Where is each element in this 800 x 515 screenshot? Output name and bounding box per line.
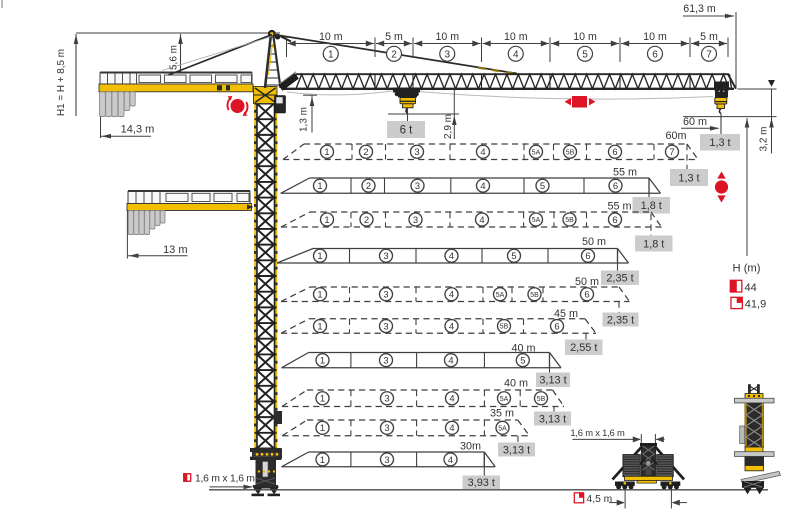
- svg-text:30m: 30m: [460, 440, 481, 452]
- svg-text:6: 6: [585, 250, 590, 261]
- svg-text:1: 1: [320, 422, 325, 433]
- svg-text:7: 7: [706, 49, 712, 60]
- svg-text:4: 4: [449, 422, 454, 433]
- svg-text:3: 3: [384, 454, 389, 465]
- svg-text:1: 1: [317, 180, 322, 191]
- svg-text:3: 3: [415, 180, 420, 191]
- svg-text:10 m: 10 m: [435, 31, 459, 43]
- svg-text:3,2 m: 3,2 m: [759, 126, 770, 151]
- svg-text:1,6 m x 1,6 m: 1,6 m x 1,6 m: [570, 427, 625, 438]
- svg-text:5B: 5B: [500, 324, 509, 331]
- svg-text:1,6 m x 1,6 m: 1,6 m x 1,6 m: [195, 474, 255, 485]
- svg-text:H (m): H (m): [733, 263, 761, 275]
- svg-text:41,9: 41,9: [745, 299, 766, 311]
- svg-text:4: 4: [480, 180, 485, 191]
- svg-text:2,35 t: 2,35 t: [607, 314, 634, 326]
- svg-text:6 t: 6 t: [400, 125, 414, 137]
- svg-text:4: 4: [479, 214, 484, 225]
- svg-text:4: 4: [449, 289, 454, 300]
- svg-text:6: 6: [652, 49, 658, 60]
- svg-text:10 m: 10 m: [643, 31, 667, 43]
- svg-text:60 m: 60 m: [683, 116, 707, 128]
- svg-text:3,13 t: 3,13 t: [539, 375, 566, 387]
- svg-text:3,13 t: 3,13 t: [539, 413, 566, 425]
- svg-text:4: 4: [449, 250, 454, 261]
- svg-text:3: 3: [384, 422, 389, 433]
- svg-text:10 m: 10 m: [504, 31, 528, 43]
- svg-text:5 m: 5 m: [385, 31, 403, 43]
- svg-text:10 m: 10 m: [319, 31, 343, 43]
- svg-text:2: 2: [391, 49, 397, 60]
- svg-text:2,35 t: 2,35 t: [606, 273, 633, 285]
- svg-text:5A: 5A: [498, 425, 507, 432]
- svg-text:44: 44: [745, 282, 757, 294]
- svg-text:5: 5: [520, 355, 525, 366]
- svg-text:3: 3: [444, 49, 450, 60]
- svg-text:5B: 5B: [537, 396, 546, 403]
- svg-text:1,8 t: 1,8 t: [643, 238, 664, 250]
- svg-text:4: 4: [480, 146, 485, 157]
- svg-text:50 m: 50 m: [582, 236, 606, 248]
- svg-text:1,3 t: 1,3 t: [678, 172, 699, 184]
- svg-text:10 m: 10 m: [573, 31, 597, 43]
- svg-text:6: 6: [612, 146, 617, 157]
- svg-text:5: 5: [540, 180, 545, 191]
- svg-text:6: 6: [613, 180, 618, 191]
- svg-text:61,3 m: 61,3 m: [683, 3, 716, 15]
- svg-text:6: 6: [554, 320, 559, 331]
- svg-text:1,8 t: 1,8 t: [641, 200, 662, 212]
- svg-text:55 m: 55 m: [613, 166, 637, 178]
- svg-text:3: 3: [383, 355, 388, 366]
- svg-text:5B: 5B: [566, 149, 575, 156]
- svg-text:60m: 60m: [665, 130, 686, 142]
- svg-text:2: 2: [363, 146, 368, 157]
- svg-text:1: 1: [324, 214, 329, 225]
- svg-text:1,3 t: 1,3 t: [709, 137, 730, 149]
- svg-text:5,6 m: 5,6 m: [169, 45, 180, 70]
- svg-text:5B: 5B: [530, 292, 539, 299]
- svg-text:2: 2: [364, 214, 369, 225]
- svg-text:5: 5: [582, 49, 588, 60]
- svg-text:1: 1: [317, 320, 322, 331]
- svg-text:1: 1: [320, 454, 325, 465]
- svg-text:55 m: 55 m: [607, 201, 631, 213]
- svg-text:50 m: 50 m: [575, 276, 599, 288]
- svg-text:6: 6: [612, 214, 617, 225]
- svg-text:1: 1: [324, 146, 329, 157]
- svg-text:3,13 t: 3,13 t: [503, 444, 530, 456]
- svg-text:1: 1: [317, 289, 322, 300]
- svg-text:35 m: 35 m: [490, 407, 514, 419]
- svg-text:3: 3: [414, 146, 419, 157]
- svg-text:2,55 t: 2,55 t: [570, 342, 597, 354]
- svg-text:H1 = H + 8,5 m: H1 = H + 8,5 m: [56, 49, 67, 116]
- svg-text:13 m: 13 m: [163, 244, 187, 256]
- svg-text:5: 5: [511, 250, 516, 261]
- svg-text:1: 1: [320, 393, 325, 404]
- svg-text:4: 4: [449, 320, 454, 331]
- svg-text:45 m: 45 m: [554, 308, 578, 320]
- svg-text:7: 7: [669, 146, 674, 157]
- svg-text:4: 4: [513, 49, 519, 60]
- svg-text:3,93 t: 3,93 t: [468, 477, 495, 489]
- svg-text:4,5 m: 4,5 m: [587, 494, 613, 505]
- svg-text:3: 3: [383, 320, 388, 331]
- svg-text:3: 3: [383, 250, 388, 261]
- svg-text:5A: 5A: [532, 217, 541, 224]
- svg-text:3: 3: [413, 214, 418, 225]
- svg-text:40 m: 40 m: [511, 342, 535, 354]
- svg-text:1: 1: [317, 250, 322, 261]
- svg-text:3: 3: [384, 393, 389, 404]
- svg-text:5A: 5A: [496, 292, 505, 299]
- svg-text:4: 4: [448, 454, 453, 465]
- svg-text:1,3 m: 1,3 m: [299, 107, 310, 132]
- svg-text:1: 1: [320, 355, 325, 366]
- svg-text:2: 2: [366, 180, 371, 191]
- svg-text:4: 4: [448, 355, 453, 366]
- svg-text:4: 4: [449, 393, 454, 404]
- svg-text:5A: 5A: [532, 149, 541, 156]
- svg-text:2,9 m: 2,9 m: [443, 114, 454, 139]
- svg-text:5B: 5B: [565, 217, 574, 224]
- svg-text:1: 1: [328, 49, 334, 60]
- svg-text:6: 6: [584, 289, 589, 300]
- svg-text:14,3 m: 14,3 m: [121, 124, 155, 136]
- svg-text:5 m: 5 m: [700, 31, 718, 43]
- svg-text:5A: 5A: [500, 396, 509, 403]
- svg-text:40 m: 40 m: [504, 377, 528, 389]
- svg-text:3: 3: [383, 289, 388, 300]
